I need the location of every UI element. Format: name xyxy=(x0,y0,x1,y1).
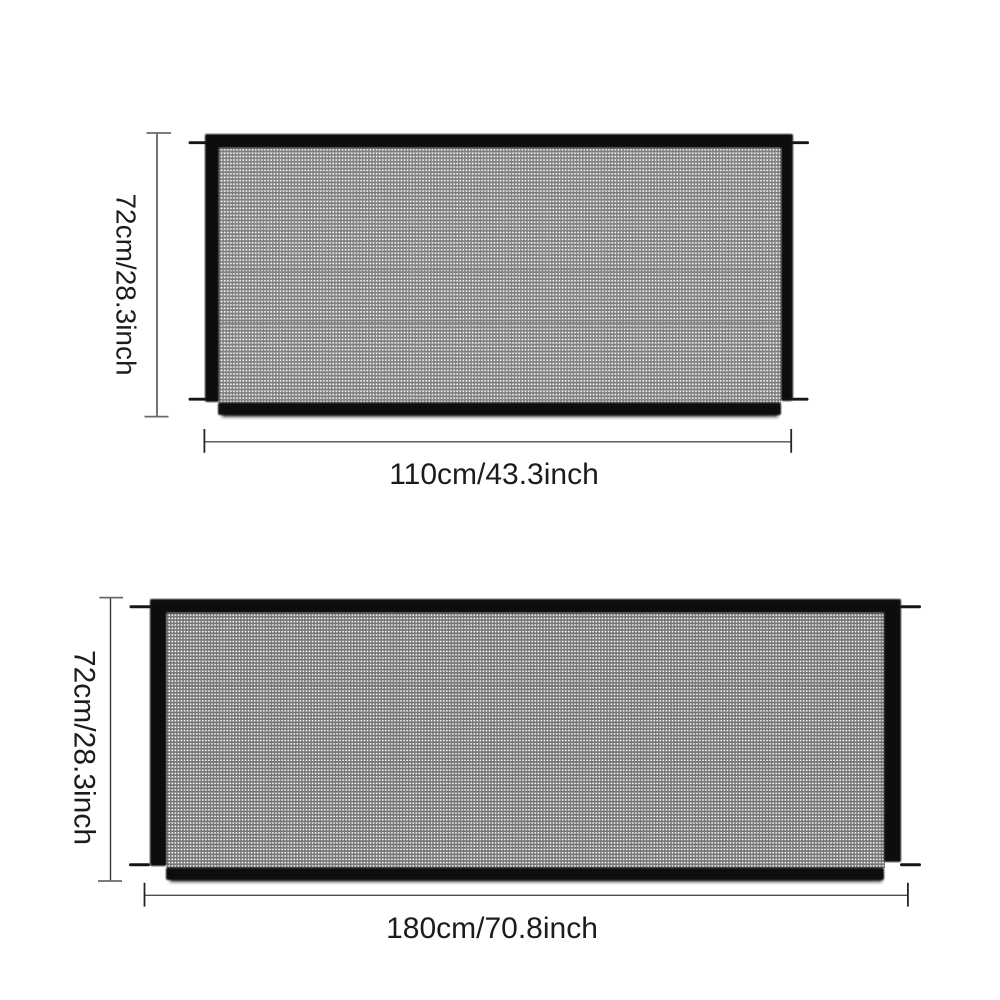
svg-text:72cm/28.3inch: 72cm/28.3inch xyxy=(111,193,142,375)
svg-text:72cm/28.3inch: 72cm/28.3inch xyxy=(68,650,101,845)
svg-text:110cm/43.3inch: 110cm/43.3inch xyxy=(389,458,599,491)
svg-text:180cm/70.8inch: 180cm/70.8inch xyxy=(386,912,598,945)
